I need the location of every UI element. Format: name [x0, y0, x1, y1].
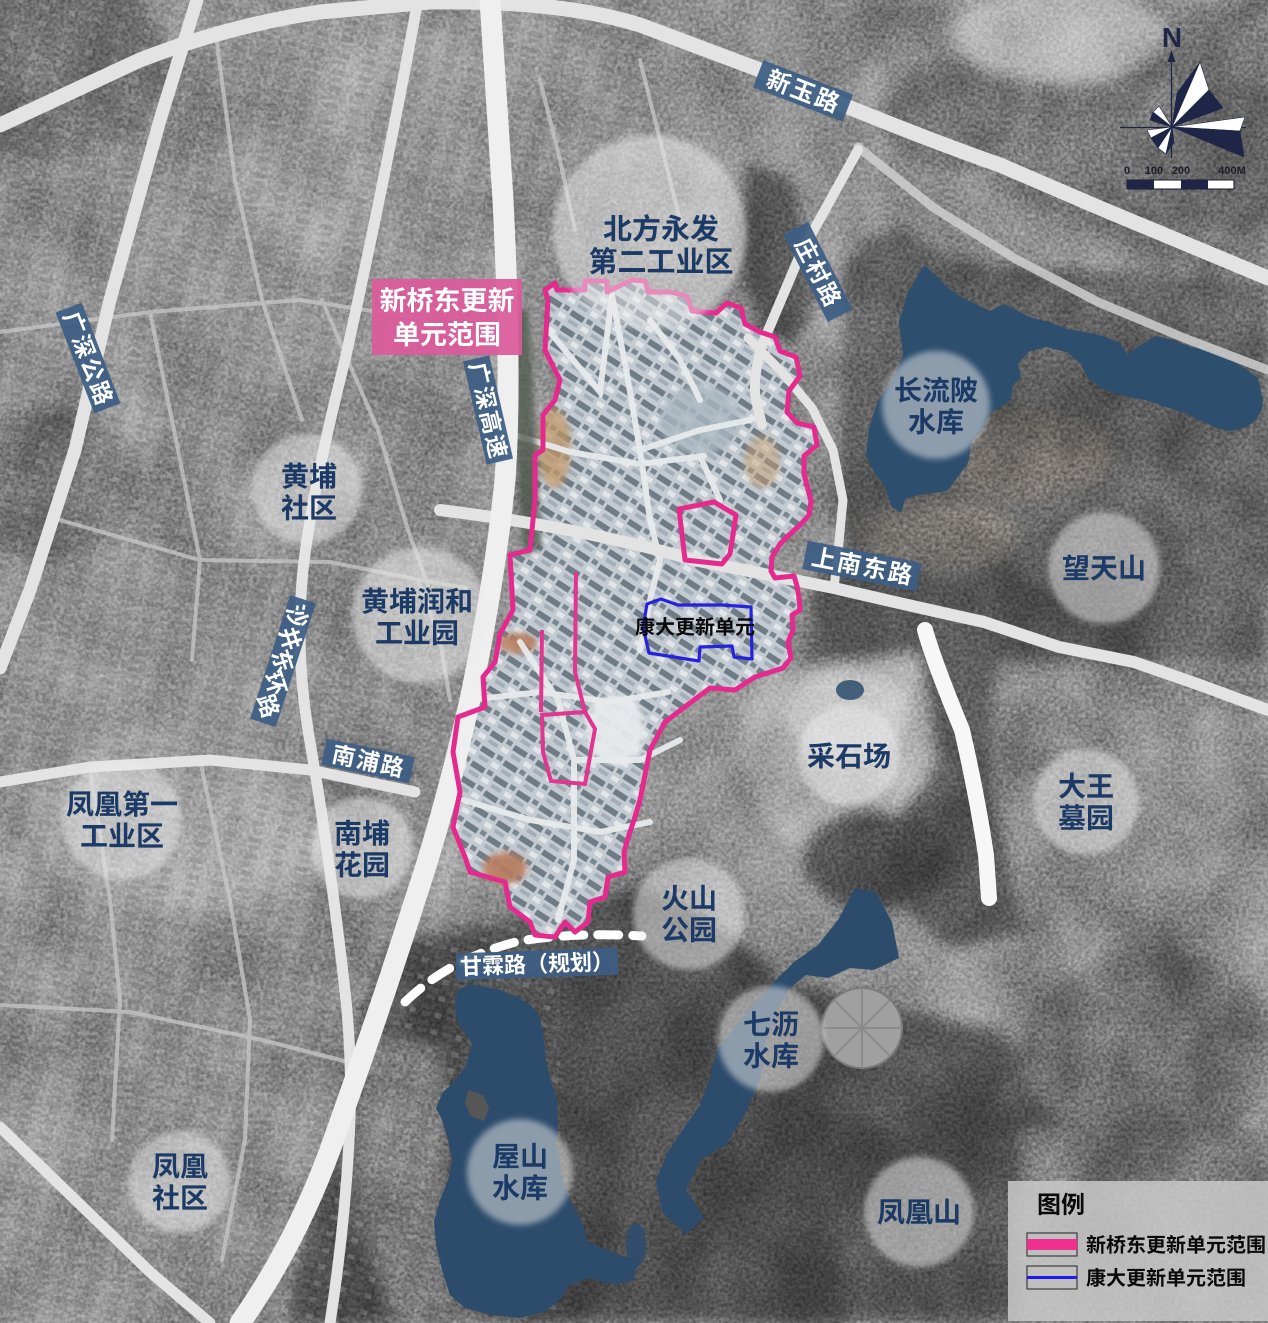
- svg-text:200: 200: [1172, 165, 1190, 177]
- svg-text:0: 0: [1124, 165, 1130, 177]
- svg-text:400M: 400M: [1218, 165, 1246, 177]
- svg-text:N: N: [1162, 22, 1182, 53]
- svg-text:100: 100: [1145, 165, 1163, 177]
